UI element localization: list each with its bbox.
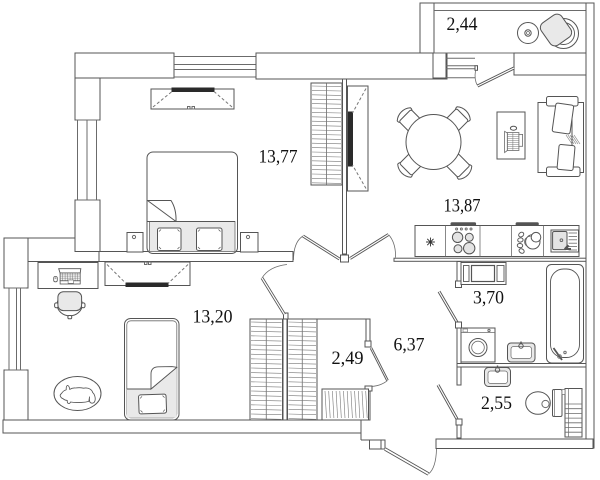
svg-text:13,87: 13,87 xyxy=(444,196,481,217)
svg-text:3,70: 3,70 xyxy=(473,288,504,309)
svg-text:2,49: 2,49 xyxy=(332,348,364,369)
svg-text:6,37: 6,37 xyxy=(394,335,425,356)
svg-text:2,44: 2,44 xyxy=(447,14,478,35)
svg-text:13,20: 13,20 xyxy=(193,307,233,328)
svg-text:2,55: 2,55 xyxy=(481,393,512,414)
svg-text:13,77: 13,77 xyxy=(259,147,298,168)
